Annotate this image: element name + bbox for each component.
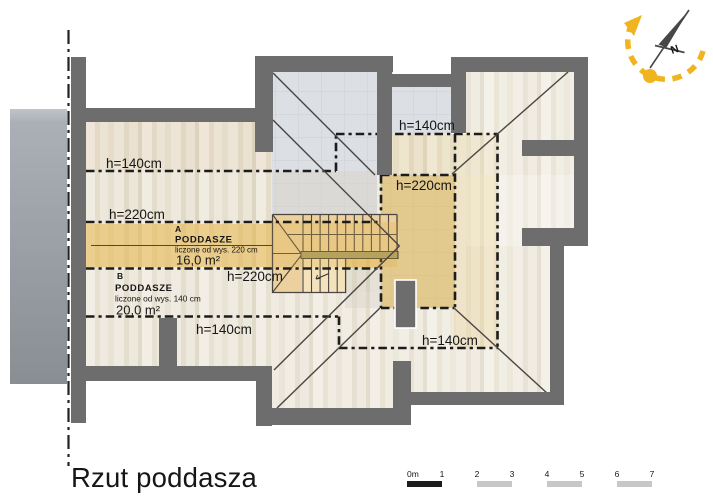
svg-text:PODDASZE: PODDASZE [115,283,173,294]
svg-text:h=220cm: h=220cm [227,269,283,284]
svg-text:B: B [117,271,123,281]
svg-text:0m: 0m [407,469,419,479]
svg-text:4: 4 [545,469,550,479]
svg-text:16,0 m²: 16,0 m² [176,253,221,268]
svg-text:2: 2 [475,469,480,479]
svg-text:A: A [175,224,181,234]
svg-text:Rzut poddasza: Rzut poddasza [71,462,258,493]
svg-text:h=220cm: h=220cm [109,207,165,222]
svg-text:20,0 m²: 20,0 m² [116,303,161,318]
svg-text:7: 7 [650,469,655,479]
svg-text:5: 5 [580,469,585,479]
svg-text:h=140cm: h=140cm [106,156,162,171]
svg-text:h=140cm: h=140cm [196,322,252,337]
svg-text:h=140cm: h=140cm [422,333,478,348]
svg-text:PODDASZE: PODDASZE [175,235,233,246]
svg-text:1: 1 [440,469,445,479]
svg-text:h=140cm: h=140cm [399,118,455,133]
svg-text:h=220cm: h=220cm [396,178,452,193]
svg-text:3: 3 [510,469,515,479]
svg-text:6: 6 [615,469,620,479]
